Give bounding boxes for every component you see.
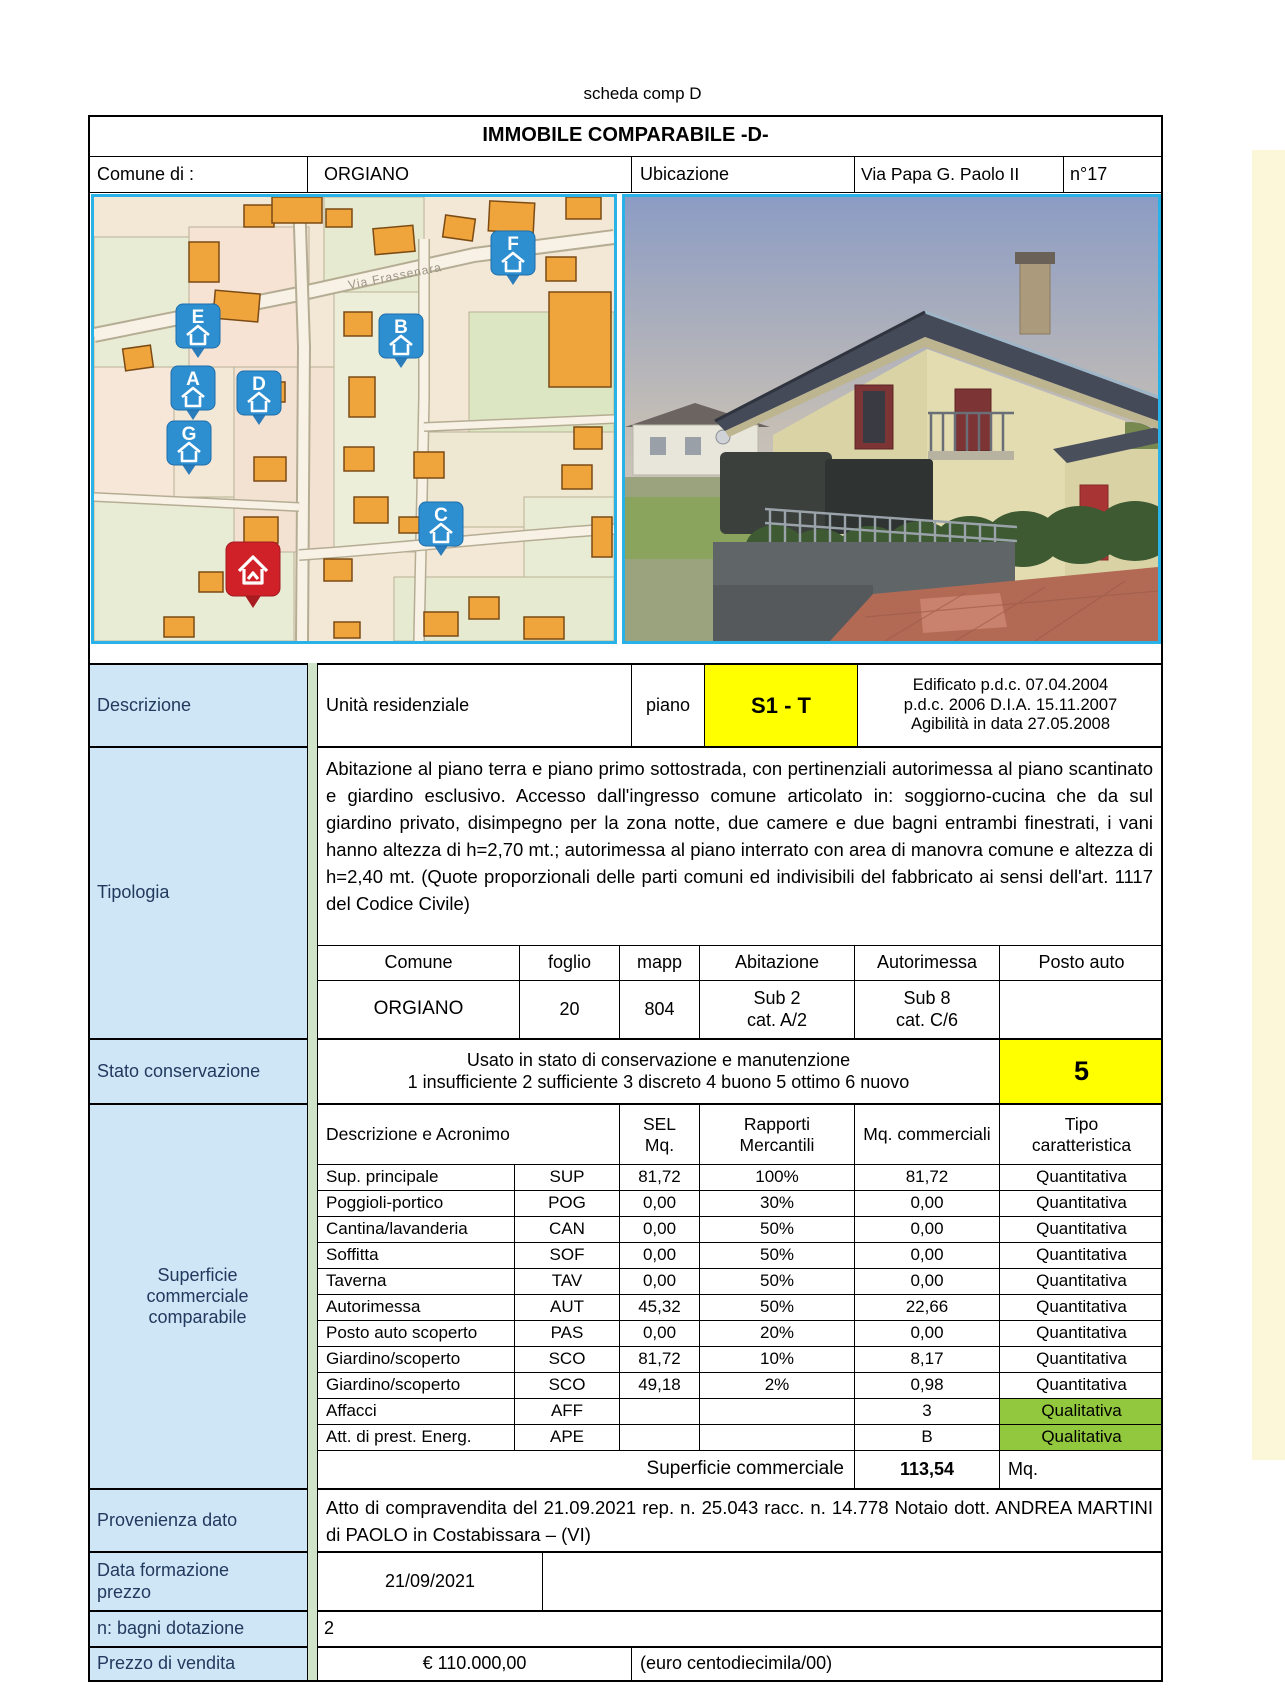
provenienza-text: Atto di compravendita del 21.09.2021 rep… bbox=[318, 1490, 1163, 1548]
prezzo-text: (euro centodiecimila/00) bbox=[632, 1648, 1163, 1680]
comune-value: ORGIANO bbox=[308, 157, 632, 193]
stato-label: Stato conservazione bbox=[88, 1040, 308, 1105]
table-row-name: Soffitta bbox=[318, 1243, 515, 1269]
table-row-tipo: Quantitativa bbox=[1000, 1243, 1163, 1269]
superficie-label: Superficie commerciale comparabile bbox=[88, 1105, 308, 1490]
piano-value: S1 - T bbox=[705, 663, 858, 748]
data-formazione-value: 21/09/2021 bbox=[318, 1553, 543, 1612]
table-row-rap: 50% bbox=[700, 1295, 855, 1321]
table-row-mq: 0,00 bbox=[855, 1269, 1000, 1295]
superficie-header-desc: Descrizione e Acronimo bbox=[318, 1105, 620, 1165]
table-row-rap bbox=[700, 1425, 855, 1451]
bagni-label: n: bagni dotazione bbox=[88, 1612, 308, 1648]
superficie-header-rapporti: Rapporti Mercantili bbox=[700, 1105, 855, 1165]
table-row-tipo: Quantitativa bbox=[1000, 1347, 1163, 1373]
catasto-header-posto-auto: Posto auto bbox=[1000, 945, 1163, 980]
table-row-mq: 0,00 bbox=[855, 1191, 1000, 1217]
stato-value: 5 bbox=[1000, 1040, 1163, 1105]
table-row-tipo: Qualitativa bbox=[1000, 1425, 1163, 1451]
table-row-name: Giardino/scoperto bbox=[318, 1347, 515, 1373]
table-row-acr: SCO bbox=[515, 1373, 620, 1399]
table-row-rap: 20% bbox=[700, 1321, 855, 1347]
table-row-rap: 50% bbox=[700, 1269, 855, 1295]
data-formazione-label: Data formazione prezzo bbox=[88, 1553, 308, 1612]
table-row-acr: CAN bbox=[515, 1217, 620, 1243]
table-row-rap: 100% bbox=[700, 1165, 855, 1191]
table-row-name: Taverna bbox=[318, 1269, 515, 1295]
edificato-line-1: Edificato p.d.c. 07.04.2004 bbox=[904, 676, 1117, 695]
table-row-mq: 0,98 bbox=[855, 1373, 1000, 1399]
catasto-posto-auto bbox=[1000, 980, 1163, 1040]
catasto-header-foglio: foglio bbox=[520, 945, 620, 980]
table-row-name: Att. di prest. Energ. bbox=[318, 1425, 515, 1451]
edificato-line-3: Agibilità in data 27.05.2008 bbox=[904, 715, 1117, 734]
table-row-tipo: Quantitativa bbox=[1000, 1269, 1163, 1295]
provenienza-label: Provenienza dato bbox=[88, 1490, 308, 1553]
edificato-line-2: p.d.c. 2006 D.I.A. 15.11.2007 bbox=[904, 696, 1117, 715]
table-row-tipo: Quantitativa bbox=[1000, 1373, 1163, 1399]
piano-label: piano bbox=[632, 663, 705, 748]
catasto-header-comune: Comune bbox=[318, 945, 520, 980]
table-row-rap: 50% bbox=[700, 1217, 855, 1243]
table-row-sel: 45,32 bbox=[620, 1295, 700, 1321]
superficie-header-sel: SEL Mq. bbox=[620, 1105, 700, 1165]
table-row-sel: 49,18 bbox=[620, 1373, 700, 1399]
superficie-header-mq: Mq. commerciali bbox=[855, 1105, 1000, 1165]
table-row-acr: POG bbox=[515, 1191, 620, 1217]
page-edge-band bbox=[1252, 150, 1285, 1460]
house-photo bbox=[625, 197, 1158, 641]
table-row-mq: B bbox=[855, 1425, 1000, 1451]
table-row-rap: 10% bbox=[700, 1347, 855, 1373]
table-row-sel: 81,72 bbox=[620, 1347, 700, 1373]
table-row-acr: AUT bbox=[515, 1295, 620, 1321]
location-map: Via Frassenara F E B bbox=[91, 194, 617, 644]
superficie-header-tipo: Tipo caratteristica bbox=[1000, 1105, 1163, 1165]
map-image: Via Frassenara F E B bbox=[94, 197, 614, 641]
table-row-tipo: Quantitativa bbox=[1000, 1191, 1163, 1217]
catasto-foglio: 20 bbox=[520, 980, 620, 1040]
table-row-sel: 0,00 bbox=[620, 1269, 700, 1295]
table-row-mq: 81,72 bbox=[855, 1165, 1000, 1191]
table-row-mq: 8,17 bbox=[855, 1347, 1000, 1373]
table-row-name: Sup. principale bbox=[318, 1165, 515, 1191]
descrizione-label: Descrizione bbox=[88, 663, 308, 748]
prezzo-value: € 110.000,00 bbox=[318, 1648, 632, 1680]
table-row-sel: 0,00 bbox=[620, 1243, 700, 1269]
table-row-sel bbox=[620, 1425, 700, 1451]
catasto-header-abitazione: Abitazione bbox=[700, 945, 855, 980]
table-row-acr: SOF bbox=[515, 1243, 620, 1269]
table-row-sel: 0,00 bbox=[620, 1217, 700, 1243]
table-row-name: Posto auto scoperto bbox=[318, 1321, 515, 1347]
bagni-value: 2 bbox=[318, 1612, 1163, 1648]
table-row-tipo: Quantitativa bbox=[1000, 1217, 1163, 1243]
tipologia-label: Tipologia bbox=[88, 748, 308, 1040]
prezzo-label: Prezzo di vendita bbox=[88, 1648, 308, 1680]
catasto-comune: ORGIANO bbox=[318, 980, 520, 1040]
table-row-acr: TAV bbox=[515, 1269, 620, 1295]
table-row-rap: 2% bbox=[700, 1373, 855, 1399]
stato-line-2: 1 insufficiente 2 sufficiente 3 discreto… bbox=[408, 1072, 910, 1093]
stato-scale: Usato in stato di conservazione e manute… bbox=[318, 1040, 1000, 1105]
table-row-name: Poggioli-portico bbox=[318, 1191, 515, 1217]
scheda-document: scheda comp D IMMOBILE COMPARABILE -D- C… bbox=[0, 0, 1285, 1691]
table-row-sel: 0,00 bbox=[620, 1321, 700, 1347]
table-row-acr: AFF bbox=[515, 1399, 620, 1425]
table-row-acr: APE bbox=[515, 1425, 620, 1451]
comune-label: Comune di : bbox=[88, 157, 308, 193]
table-row-acr: PAS bbox=[515, 1321, 620, 1347]
table-row-acr: SCO bbox=[515, 1347, 620, 1373]
catasto-abitazione: Sub 2 cat. A/2 bbox=[700, 980, 855, 1040]
catasto-header-mapp: mapp bbox=[620, 945, 700, 980]
table-row-name: Affacci bbox=[318, 1399, 515, 1425]
civic-number: n°17 bbox=[1064, 157, 1163, 193]
table-row-name: Cantina/lavanderia bbox=[318, 1217, 515, 1243]
catasto-header-autorimessa: Autorimessa bbox=[855, 945, 1000, 980]
table-row-rap: 50% bbox=[700, 1243, 855, 1269]
table-row-name: Giardino/scoperto bbox=[318, 1373, 515, 1399]
property-photo bbox=[622, 194, 1161, 644]
ubicazione-label: Ubicazione bbox=[632, 157, 855, 193]
chimney bbox=[1015, 252, 1055, 334]
catasto-autorimessa: Sub 8 cat. C/6 bbox=[855, 980, 1000, 1040]
bins-garage bbox=[720, 452, 933, 534]
table-row-rap bbox=[700, 1399, 855, 1425]
table-row-tipo: Quantitativa bbox=[1000, 1321, 1163, 1347]
table-row-mq: 3 bbox=[855, 1399, 1000, 1425]
superficie-totale-value: 113,54 bbox=[855, 1451, 1000, 1490]
table-row-sel: 0,00 bbox=[620, 1191, 700, 1217]
superficie-totale-unit: Mq. bbox=[1000, 1451, 1163, 1490]
table-row-mq: 0,00 bbox=[855, 1321, 1000, 1347]
table-row-mq: 0,00 bbox=[855, 1217, 1000, 1243]
table-row-sel bbox=[620, 1399, 700, 1425]
table-row-rap: 30% bbox=[700, 1191, 855, 1217]
edificato-info: Edificato p.d.c. 07.04.2004 p.d.c. 2006 … bbox=[858, 663, 1163, 748]
descrizione-value: Unità residenziale bbox=[318, 663, 632, 748]
table-row-name: Autorimessa bbox=[318, 1295, 515, 1321]
table-row-sel: 81,72 bbox=[620, 1165, 700, 1191]
stato-line-1: Usato in stato di conservazione e manute… bbox=[408, 1050, 910, 1071]
catasto-mapp: 804 bbox=[620, 980, 700, 1040]
superficie-totale-label: Superficie commerciale bbox=[318, 1451, 855, 1490]
table-row-tipo: Quantitativa bbox=[1000, 1165, 1163, 1191]
page-title: scheda comp D bbox=[0, 82, 1285, 106]
table-row-tipo: Quantitativa bbox=[1000, 1295, 1163, 1321]
table-row-acr: SUP bbox=[515, 1165, 620, 1191]
green-divider-band bbox=[308, 663, 318, 1682]
table-row-mq: 0,00 bbox=[855, 1243, 1000, 1269]
table-row-tipo: Qualitativa bbox=[1000, 1399, 1163, 1425]
tipologia-text: Abitazione al piano terra e piano primo … bbox=[318, 748, 1163, 917]
table-row-mq: 22,66 bbox=[855, 1295, 1000, 1321]
document-header: IMMOBILE COMPARABILE -D- bbox=[88, 115, 1163, 157]
street-value: Via Papa G. Paolo II bbox=[855, 157, 1064, 193]
data-formazione-empty bbox=[543, 1553, 1163, 1612]
